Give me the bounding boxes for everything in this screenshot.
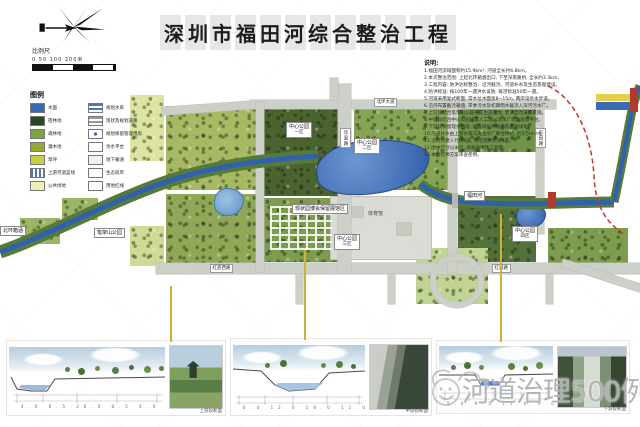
note-line: 4.防洪标准: 按100年一遇洪水设防, 排涝标准50年一遇。 (424, 89, 638, 96)
legend-col2: 规划水系现状及规划道路规划保留管理用房亲水平台地下箱涵生态驳岸用地红线 (88, 103, 142, 191)
legend-label: 密林地 (48, 118, 62, 124)
section-profile (231, 339, 367, 411)
area-label: 体育馆 (366, 210, 385, 218)
area-label: 中心公园四区 (512, 226, 538, 242)
leader-line (304, 250, 306, 340)
note-line: 3.工程内容: 防洪达标整治、沿河截污、河道补水及生态景观建设。 (424, 82, 638, 89)
note-line: 1.福田河流域面积约15.9km², 河道全长约6.8km。 (424, 68, 638, 75)
legend-label: 公共绿地 (48, 183, 66, 189)
notes-block: 说明: 1.福田河流域面积约15.9km², 河道全长约6.8km。2.本次整治… (424, 58, 638, 159)
note-line: 2.本次整治范围: 上起北环箱涵出口, 下至深南路桥, 全长约3.3km。 (424, 75, 638, 82)
road-label: 北环大道 (374, 98, 397, 107)
area-label-sub: 二区 (357, 146, 377, 152)
legend-item: 现状及规划道路 (88, 116, 142, 126)
legend-label: 现状及规划道路 (106, 118, 138, 124)
area-label: 北环箱涵 (0, 226, 26, 236)
legend-label: 上游河道蓝线 (48, 170, 75, 176)
section-photo (369, 344, 429, 410)
legend-item: 疏林地 (30, 129, 82, 139)
legend-item: 上游河道蓝线 (30, 168, 82, 178)
legend-item: 亲水平台 (88, 142, 142, 152)
legend-swatch (30, 155, 45, 165)
scale-ticks: 0 50 100 200米 (32, 56, 116, 63)
legend-columns: 水面密林地疏林地灌木地草坪上游河道蓝线公共绿地 规划水系现状及规划道路规划保留管… (30, 103, 142, 191)
section-panel-3: 5.0 9.0 15.0 9.0 5.0 下游段断面 (436, 340, 630, 414)
area-label: 现状园博会保留展馆区 (292, 204, 348, 214)
legend-item: 灌木地 (30, 142, 82, 152)
legend-item: 草坪 (30, 155, 82, 165)
legend-label: 规划保留管理用房 (106, 131, 142, 137)
area-label: 中心公园一区 (286, 122, 312, 138)
sheet-title: 深圳市福田河综合整治工程 (160, 15, 456, 50)
legend-item: 公共绿地 (30, 181, 82, 191)
legend-swatch (88, 155, 103, 165)
tree-icons (451, 365, 456, 370)
area-label: 中心公园三区 (334, 234, 360, 250)
area-label: 福田河 (464, 191, 485, 201)
legend-item: 规划保留管理用房 (88, 129, 142, 139)
area-label: 中心公园二区 (354, 138, 380, 154)
legend-label: 水面 (48, 105, 57, 111)
area-label: 笔架山公园 (94, 228, 125, 238)
legend-item: 生态驳岸 (88, 168, 142, 178)
legend-swatch (88, 129, 103, 139)
leader-line (500, 214, 502, 342)
plan-sheet: 比例尺 0 50 100 200米 深圳市福田河综合整治工程 图例 水面密林地疏… (0, 0, 640, 427)
legend-label: 灌木地 (48, 144, 62, 150)
legend-swatch (30, 142, 45, 152)
note-line: 11.沿河新建人行桥4座, 改造现状桥梁6座。 (424, 138, 638, 145)
legend-header: 图例 (30, 90, 142, 100)
legend-swatch (88, 168, 103, 178)
legend-swatch (30, 181, 45, 191)
legend-item: 水面 (30, 103, 82, 113)
legend-col1: 水面密林地疏林地灌木地草坪上游河道蓝线公共绿地 (30, 103, 82, 191)
area-label-sub: 一区 (289, 130, 309, 136)
legend-swatch (88, 181, 103, 191)
leader-line (170, 286, 172, 342)
area-label-sub: 三区 (337, 242, 357, 248)
section-panel-2: 6.0 12.0 18.0 12.0 6.0 中游段断面 (230, 338, 432, 416)
legend-swatch (30, 129, 45, 139)
legend-item: 用地红线 (88, 181, 142, 191)
legend: 图例 水面密林地疏林地灌木地草坪上游河道蓝线公共绿地 规划水系现状及规划道路规划… (30, 90, 142, 191)
legend-swatch (88, 103, 103, 113)
notes-lines: 1.福田河流域面积约15.9km², 河道全长约6.8km。2.本次整治范围: … (424, 68, 638, 159)
note-line: 13.本图仅供方案审查使用。 (424, 152, 638, 159)
note-line: 12.图中尺寸以米计, 高程采用珠江基面。 (424, 145, 638, 152)
note-line: 8.中游段结合中心公园设置人工湖、滨水广场及观景平台。 (424, 117, 638, 124)
section-profile (437, 341, 555, 409)
legend-item: 规划水系 (88, 103, 142, 113)
note-line: 6.沿河布置截污箱涵, 旱季污水及初期雨水截流入滨河污水厂。 (424, 103, 638, 110)
legend-swatch (30, 168, 45, 178)
tree-icons (65, 367, 70, 372)
compass-rose-icon (36, 4, 112, 46)
section-caption: 下游段断面 (604, 406, 627, 412)
legend-label: 草坪 (48, 157, 57, 163)
legend-swatch (30, 103, 45, 113)
legend-item: 密林地 (30, 116, 82, 126)
note-line: 9.下游段保留现状挡墙, 增设绿化种植槽及垂直绿化。 (424, 124, 638, 131)
notes-header: 说明: (424, 58, 638, 67)
legend-label: 地下箱涵 (106, 157, 124, 163)
section-profile (7, 341, 167, 411)
legend-label: 疏林地 (48, 131, 62, 137)
legend-swatch (88, 142, 103, 152)
north-compass-icon (36, 4, 112, 50)
scale-label: 比例尺 (32, 46, 116, 55)
scale-bar-graphic (32, 64, 116, 71)
section-panel-1: 4.0 8.5 26.0 8.5 4.0 上游段断面 (6, 340, 226, 416)
legend-label: 生态驳岸 (106, 170, 124, 176)
legend-swatch (88, 116, 103, 126)
note-line: 10.河道补水由上游水库与再生水厂联合供给, 约5万m³/d。 (424, 131, 638, 138)
legend-label: 规划水系 (106, 105, 124, 111)
section-caption: 中游段断面 (406, 408, 429, 414)
note-line: 7.上游段结合笔架山公园布置生态湿地, 营造自然溪流景观。 (424, 110, 638, 117)
legend-label: 用地红线 (106, 183, 124, 189)
tree-icons (265, 363, 270, 368)
legend-item: 地下箱涵 (88, 155, 142, 165)
road-label: 红荔西路 (210, 264, 233, 273)
scale-bar: 比例尺 0 50 100 200米 (32, 46, 116, 71)
section-caption: 上游段断面 (200, 408, 223, 414)
section-photo (169, 345, 223, 409)
area-label-sub: 四区 (515, 234, 535, 240)
legend-label: 亲水平台 (106, 144, 124, 150)
legend-swatch (30, 116, 45, 126)
section-photo (557, 346, 627, 408)
note-line: 5.河道采用复式断面, 常水位水面宽8~15m, 两岸设亲水步道。 (424, 96, 638, 103)
road-label: 华富路 (340, 128, 351, 148)
